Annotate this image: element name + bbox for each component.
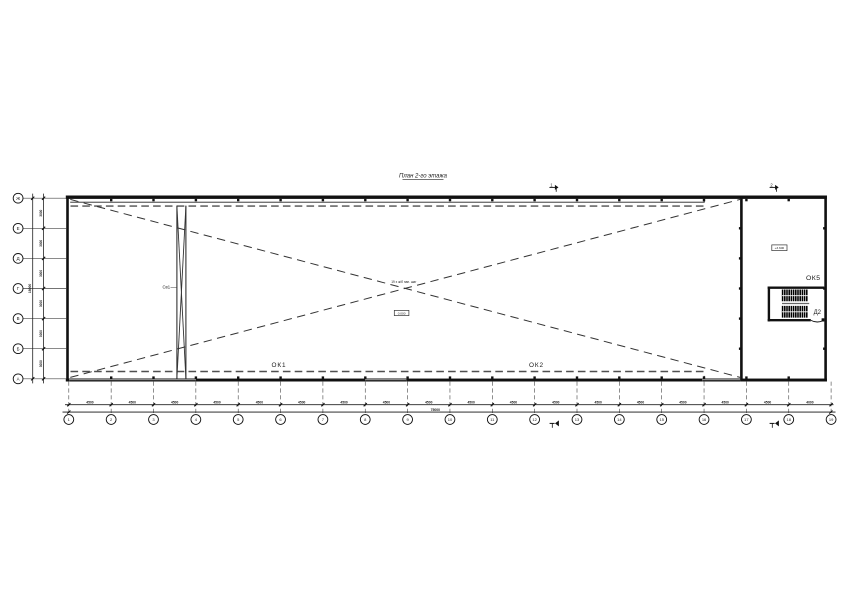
svg-text:14: 14 bbox=[617, 417, 622, 422]
svg-text:16: 16 bbox=[702, 417, 707, 422]
svg-text:15: 15 bbox=[659, 417, 664, 422]
svg-text:4500: 4500 bbox=[340, 400, 348, 404]
svg-text:4500: 4500 bbox=[129, 400, 137, 404]
svg-text:18000: 18000 bbox=[28, 284, 32, 294]
svg-text:4000: 4000 bbox=[806, 400, 814, 404]
svg-text:Е: Е bbox=[17, 226, 20, 231]
svg-text:3000: 3000 bbox=[39, 209, 43, 216]
svg-text:4500: 4500 bbox=[722, 400, 730, 404]
svg-text:4500: 4500 bbox=[679, 400, 687, 404]
svg-text:4500: 4500 bbox=[383, 400, 391, 404]
svg-text:3000: 3000 bbox=[39, 330, 43, 337]
svg-text:ОК5: ОК5 bbox=[806, 275, 821, 282]
svg-text:ОК2: ОК2 bbox=[529, 362, 544, 369]
svg-text:3000: 3000 bbox=[39, 300, 43, 307]
svg-text:4500: 4500 bbox=[594, 400, 602, 404]
svg-text:А: А bbox=[17, 376, 20, 381]
svg-text:19: 19 bbox=[829, 417, 834, 422]
svg-text:0.000: 0.000 bbox=[398, 311, 406, 315]
svg-text:4500: 4500 bbox=[467, 400, 475, 404]
svg-text:18: 18 bbox=[787, 417, 792, 422]
svg-text:Д2: Д2 bbox=[814, 310, 822, 316]
svg-text:3000: 3000 bbox=[39, 240, 43, 247]
svg-text:75000: 75000 bbox=[431, 408, 441, 412]
svg-text:4500: 4500 bbox=[213, 400, 221, 404]
svg-text:4500: 4500 bbox=[552, 400, 560, 404]
svg-text:12: 12 bbox=[532, 417, 537, 422]
svg-text:Д: Д bbox=[17, 256, 20, 261]
svg-text:4500: 4500 bbox=[637, 400, 645, 404]
svg-text:Св1: Св1 bbox=[163, 285, 171, 290]
svg-text:ОК1: ОК1 bbox=[272, 362, 287, 369]
svg-text:4500: 4500 bbox=[425, 400, 433, 404]
svg-text:План 2-го этажа: План 2-го этажа bbox=[399, 174, 448, 180]
svg-text:В: В bbox=[17, 316, 20, 321]
svg-text:Ж: Ж bbox=[16, 196, 20, 201]
svg-text:4500: 4500 bbox=[298, 400, 306, 404]
svg-text:4500: 4500 bbox=[256, 400, 264, 404]
svg-text:4500: 4500 bbox=[510, 400, 518, 404]
svg-text:4500: 4500 bbox=[171, 400, 179, 404]
svg-text:10: 10 bbox=[448, 417, 453, 422]
svg-text:19 х ж/б пан. шаг: 19 х ж/б пан. шаг bbox=[391, 280, 417, 284]
svg-text:3000: 3000 bbox=[39, 270, 43, 277]
svg-text:13: 13 bbox=[575, 417, 580, 422]
svg-text:4500: 4500 bbox=[764, 400, 772, 404]
svg-text:3000: 3000 bbox=[39, 360, 43, 367]
svg-text:4500: 4500 bbox=[86, 400, 94, 404]
svg-text:+3.600: +3.600 bbox=[775, 246, 785, 250]
svg-text:Б: Б bbox=[17, 346, 20, 351]
svg-text:17: 17 bbox=[744, 417, 749, 422]
